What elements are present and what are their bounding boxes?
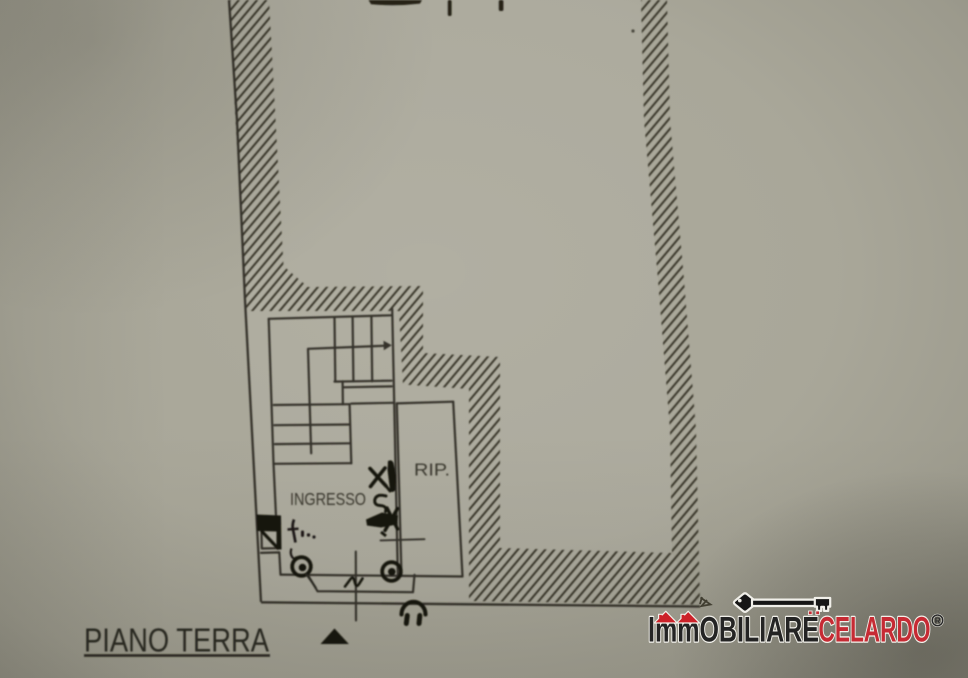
svg-text:ImmOBILIARE: ImmOBILIARE: [648, 610, 819, 650]
svg-text:CELARDO: CELARDO: [819, 610, 931, 650]
svg-text:R: R: [935, 617, 941, 626]
